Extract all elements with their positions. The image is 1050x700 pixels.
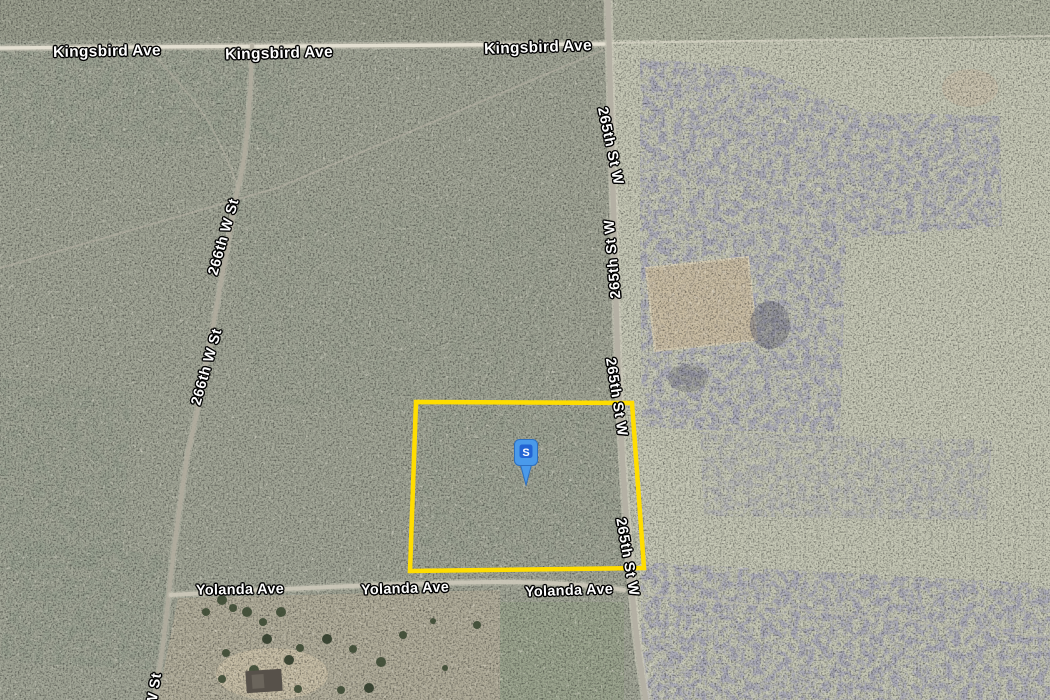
terrain-layer: S: [0, 0, 1050, 700]
satellite-map[interactable]: S Kingsbird Ave Kingsbird Ave Kingsbird …: [0, 0, 1050, 700]
marker-label: S: [522, 447, 529, 459]
building: [245, 669, 282, 693]
